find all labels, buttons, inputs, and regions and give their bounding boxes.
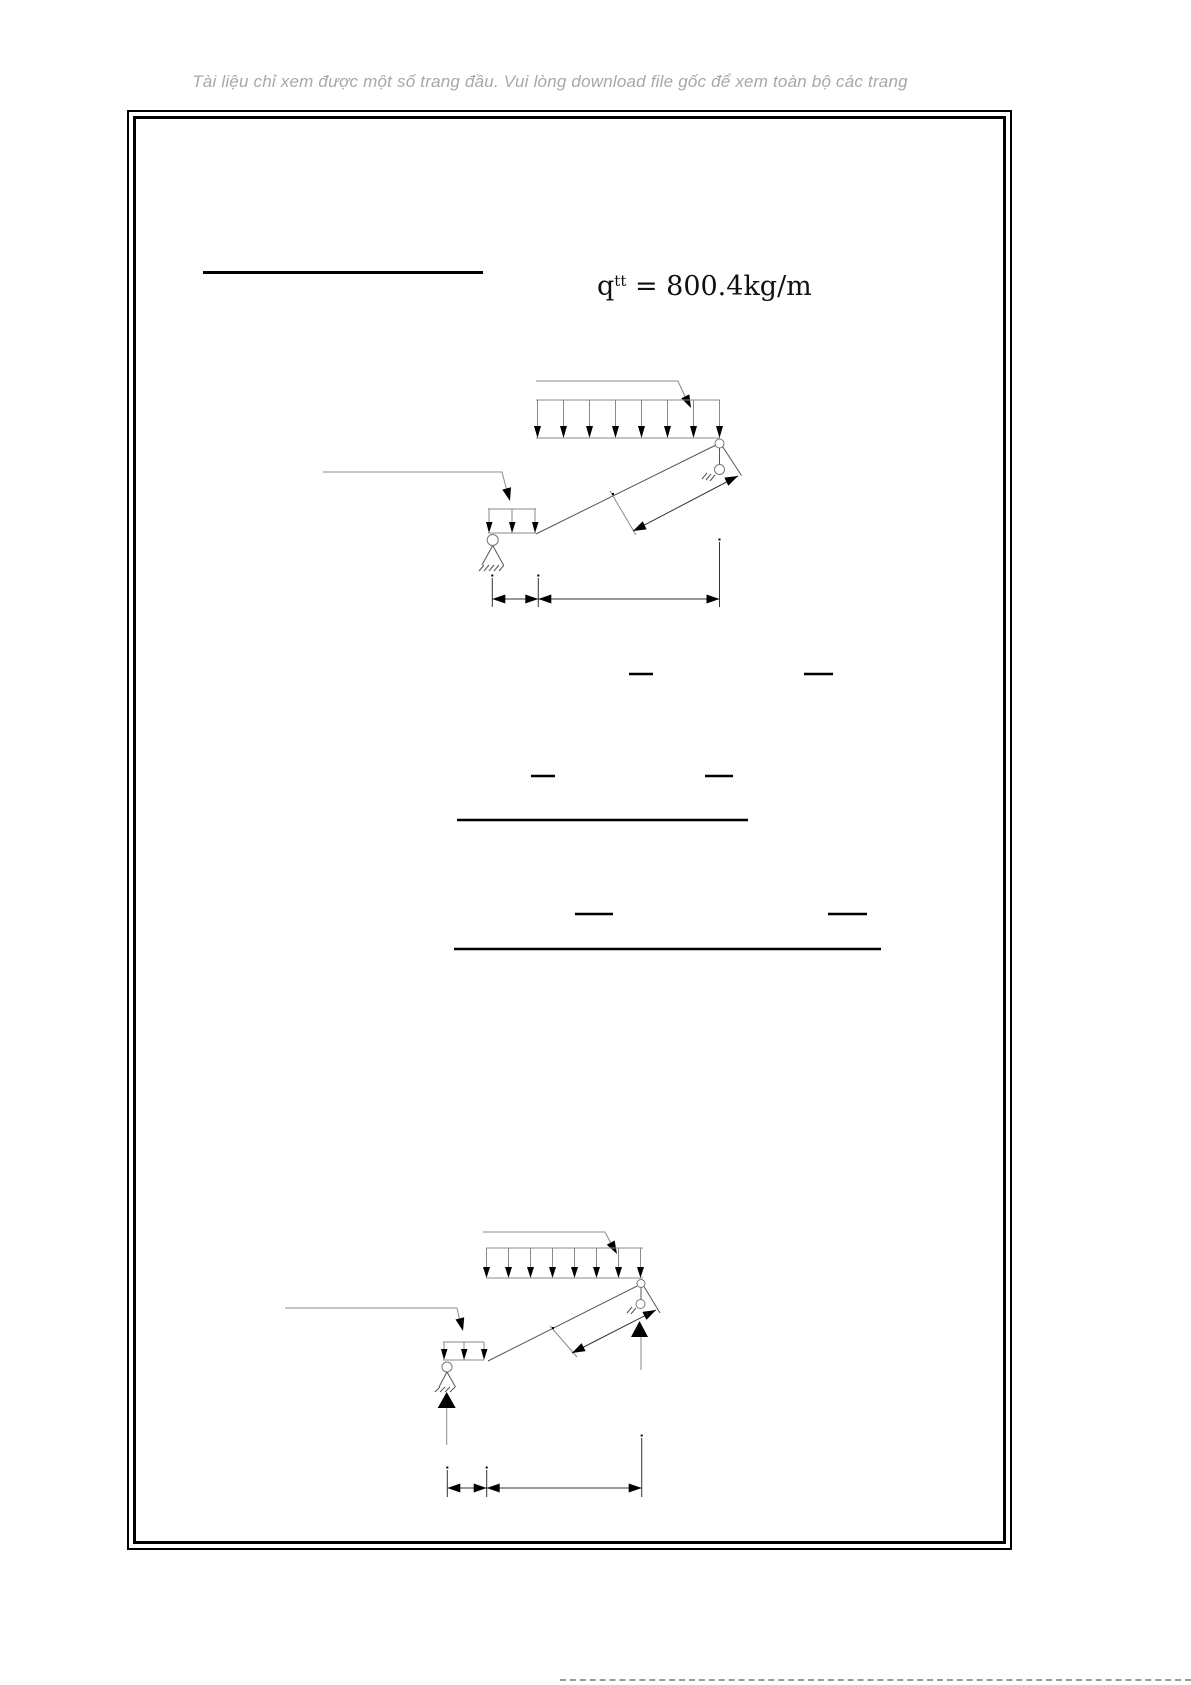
bottom-dimension xyxy=(446,1435,642,1498)
hinge-icon xyxy=(637,1280,645,1288)
leader-arrow-icon xyxy=(455,1317,467,1332)
hinge-assembly xyxy=(702,439,742,481)
pin-support-icon xyxy=(479,535,504,572)
distributed-load-main xyxy=(534,400,723,438)
ground-hatch xyxy=(702,473,715,481)
distributed-load-small xyxy=(486,509,539,533)
leader-line-small-load xyxy=(285,1308,467,1332)
ground-hatch xyxy=(435,1387,455,1392)
document-page: Tài liệu chỉ xem được một số trang đầu. … xyxy=(0,0,1191,1685)
reaction-arrow-icon xyxy=(631,1321,648,1370)
ground-hatch xyxy=(479,565,504,571)
drawing-layer xyxy=(0,0,1191,1685)
leader-arrow-icon xyxy=(681,394,695,410)
reaction-arrow-icon xyxy=(438,1392,456,1445)
diagram-calculation-scheme xyxy=(285,1232,660,1497)
bottom-dimension xyxy=(491,539,720,608)
load-arrows xyxy=(534,400,723,438)
ground-hatch xyxy=(627,1307,636,1314)
leader-arrow-icon xyxy=(502,487,514,502)
inclined-dimension xyxy=(610,472,740,535)
distributed-load-main xyxy=(483,1248,644,1278)
leader-line-small-load xyxy=(323,472,514,502)
leader-line-main-load xyxy=(483,1232,621,1256)
inclined-beam xyxy=(488,1286,637,1361)
diagram-load-scheme xyxy=(323,381,742,607)
hinge-icon xyxy=(715,465,725,475)
formula-fraction-lines xyxy=(454,674,881,949)
hinge-icon xyxy=(636,1300,645,1309)
load-arrows xyxy=(483,1248,644,1278)
page-bottom-dashed-line xyxy=(560,1679,1191,1681)
pin-support-icon xyxy=(435,1362,456,1392)
distributed-load-small xyxy=(441,1342,488,1360)
hinge-assembly xyxy=(627,1280,660,1315)
